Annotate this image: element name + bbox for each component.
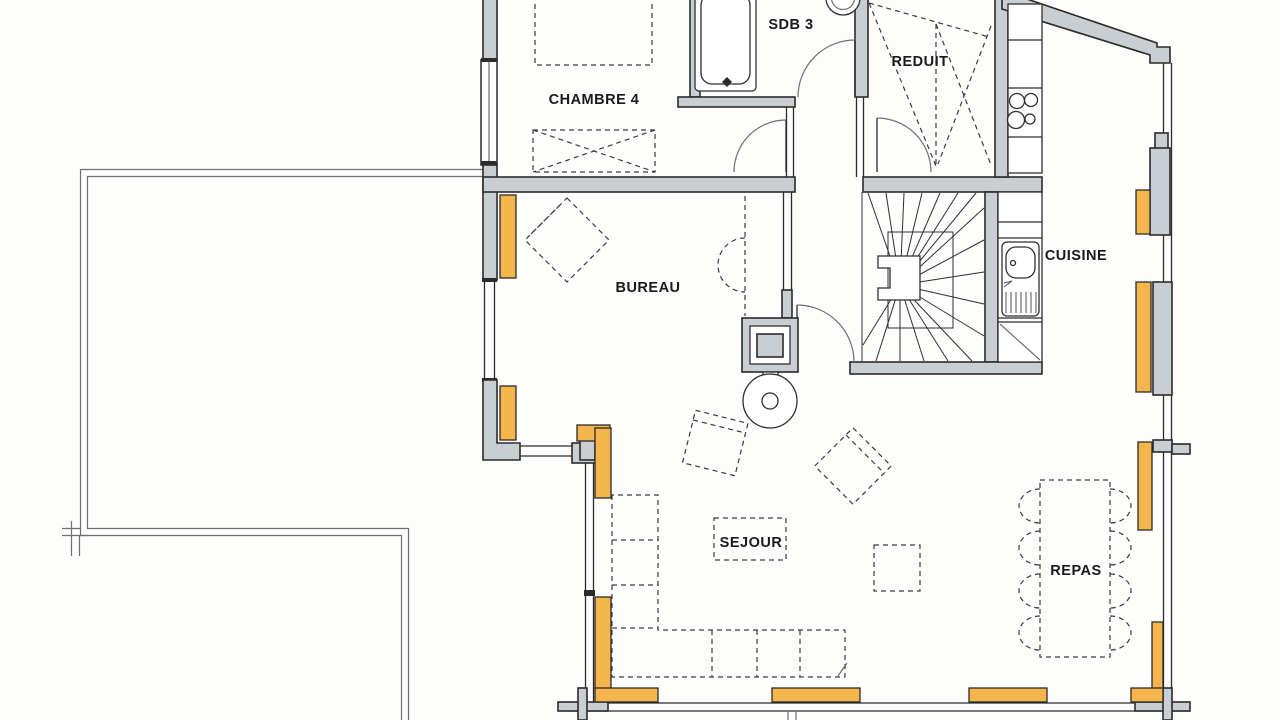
window-west-bureau (482, 278, 497, 382)
armchair-2 (815, 428, 891, 504)
window-west-chambre (481, 58, 497, 165)
kitchen-counter-top (1008, 4, 1043, 173)
winder-staircase (862, 192, 984, 362)
room-label-sdb-3: SDB 3 (768, 17, 813, 33)
bureau-desk-diamond (525, 198, 609, 282)
reduit-storage-cross (869, 3, 991, 166)
floor-plan-canvas: CHAMBRE 4 SDB 3 REDUIT CUISINE BUREAU SE… (0, 0, 1280, 720)
bed (535, 0, 652, 65)
door-stairs (797, 305, 854, 362)
stair-newel-post (878, 256, 920, 300)
corner-sofa (612, 495, 847, 677)
east-railing-stub (1172, 444, 1190, 454)
terrace-corner-post (62, 521, 87, 556)
bureau-chair (718, 196, 745, 316)
terrace-outline (62, 170, 483, 720)
door-reduit (877, 118, 931, 172)
room-label-chambre-4: CHAMBRE 4 (549, 92, 640, 108)
armchair-1 (683, 410, 748, 475)
room-label-repas: REPAS (1050, 563, 1101, 579)
room-label-reduit: REDUIT (892, 54, 949, 70)
chimney-icon (742, 318, 798, 372)
floor-plan-page: CHAMBRE 4 SDB 3 REDUIT CUISINE BUREAU SE… (0, 0, 1280, 720)
door-sdb3 (798, 40, 855, 97)
walls (481, 0, 1190, 720)
side-table (874, 545, 920, 591)
door-chambre4 (734, 120, 786, 172)
room-label-cuisine: CUISINE (1045, 248, 1107, 264)
kitchen-sink-icon (1002, 242, 1039, 316)
room-label-sejour: SEJOUR (720, 535, 783, 551)
room-label-bureau: BUREAU (615, 280, 680, 296)
doors (734, 40, 931, 362)
wardrobe (533, 130, 655, 172)
kitchen-counter-lower (998, 192, 1042, 362)
wood-stove-icon (743, 372, 797, 428)
windows (500, 190, 1163, 702)
bathtub-icon (695, 0, 756, 91)
